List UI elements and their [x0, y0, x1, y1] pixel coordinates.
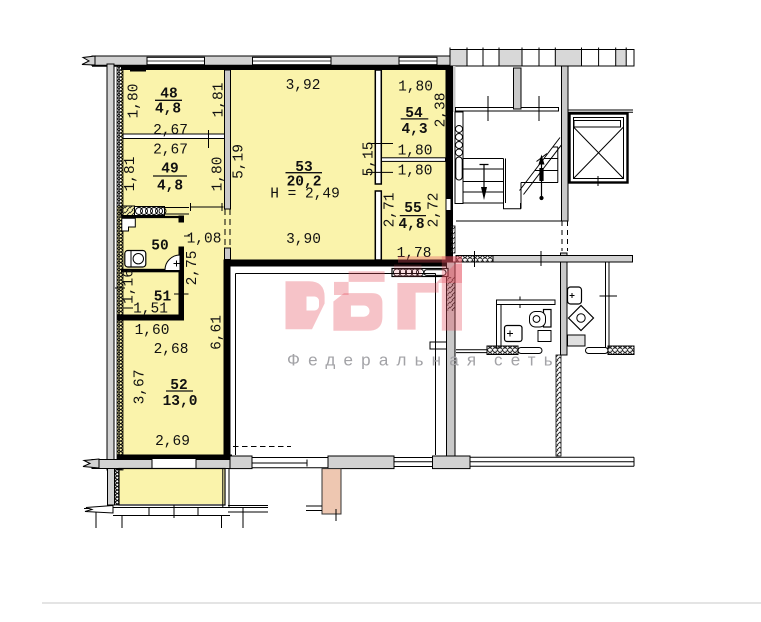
svg-text:4,3: 4,3	[401, 122, 427, 138]
svg-text:4,8: 4,8	[398, 217, 424, 233]
svg-text:сеть: сеть	[494, 351, 561, 370]
svg-text:54: 54	[405, 106, 423, 122]
svg-text:1,81: 1,81	[212, 83, 228, 118]
svg-text:5,19: 5,19	[232, 144, 248, 179]
svg-text:2,67: 2,67	[153, 143, 188, 159]
svg-text:1,80: 1,80	[398, 144, 433, 160]
svg-text:13,0: 13,0	[163, 394, 198, 410]
svg-text:2,38: 2,38	[434, 93, 450, 128]
svg-text:4,8: 4,8	[155, 102, 181, 118]
svg-text:55: 55	[404, 201, 421, 217]
svg-text:2,68: 2,68	[154, 342, 189, 358]
svg-text:1,16: 1,16	[122, 269, 138, 304]
svg-text:1,51: 1,51	[133, 302, 168, 318]
svg-text:3,92: 3,92	[286, 78, 321, 94]
svg-text:Федеральная: Федеральная	[287, 351, 484, 370]
svg-text:H = 2,49: H = 2,49	[270, 187, 340, 203]
svg-text:4,8: 4,8	[157, 179, 183, 195]
svg-text:6,61: 6,61	[210, 315, 226, 350]
svg-text:1,81: 1,81	[123, 157, 139, 192]
svg-text:49: 49	[161, 162, 178, 178]
svg-text:1,80: 1,80	[211, 157, 227, 192]
svg-text:50: 50	[151, 239, 168, 255]
svg-text:2,72: 2,72	[427, 193, 443, 228]
svg-text:1,60: 1,60	[135, 323, 170, 339]
svg-text:1,80: 1,80	[398, 80, 433, 96]
svg-text:1,80: 1,80	[127, 84, 143, 119]
svg-text:1,80: 1,80	[398, 164, 433, 180]
svg-text:3,67: 3,67	[133, 370, 149, 405]
svg-text:3,90: 3,90	[286, 232, 321, 248]
svg-text:5,15: 5,15	[362, 142, 378, 177]
svg-text:2,71: 2,71	[383, 193, 399, 228]
svg-text:2,69: 2,69	[155, 434, 190, 450]
svg-text:1,08: 1,08	[187, 232, 222, 248]
svg-text:2,75: 2,75	[185, 251, 201, 286]
svg-text:2,67: 2,67	[153, 123, 188, 139]
